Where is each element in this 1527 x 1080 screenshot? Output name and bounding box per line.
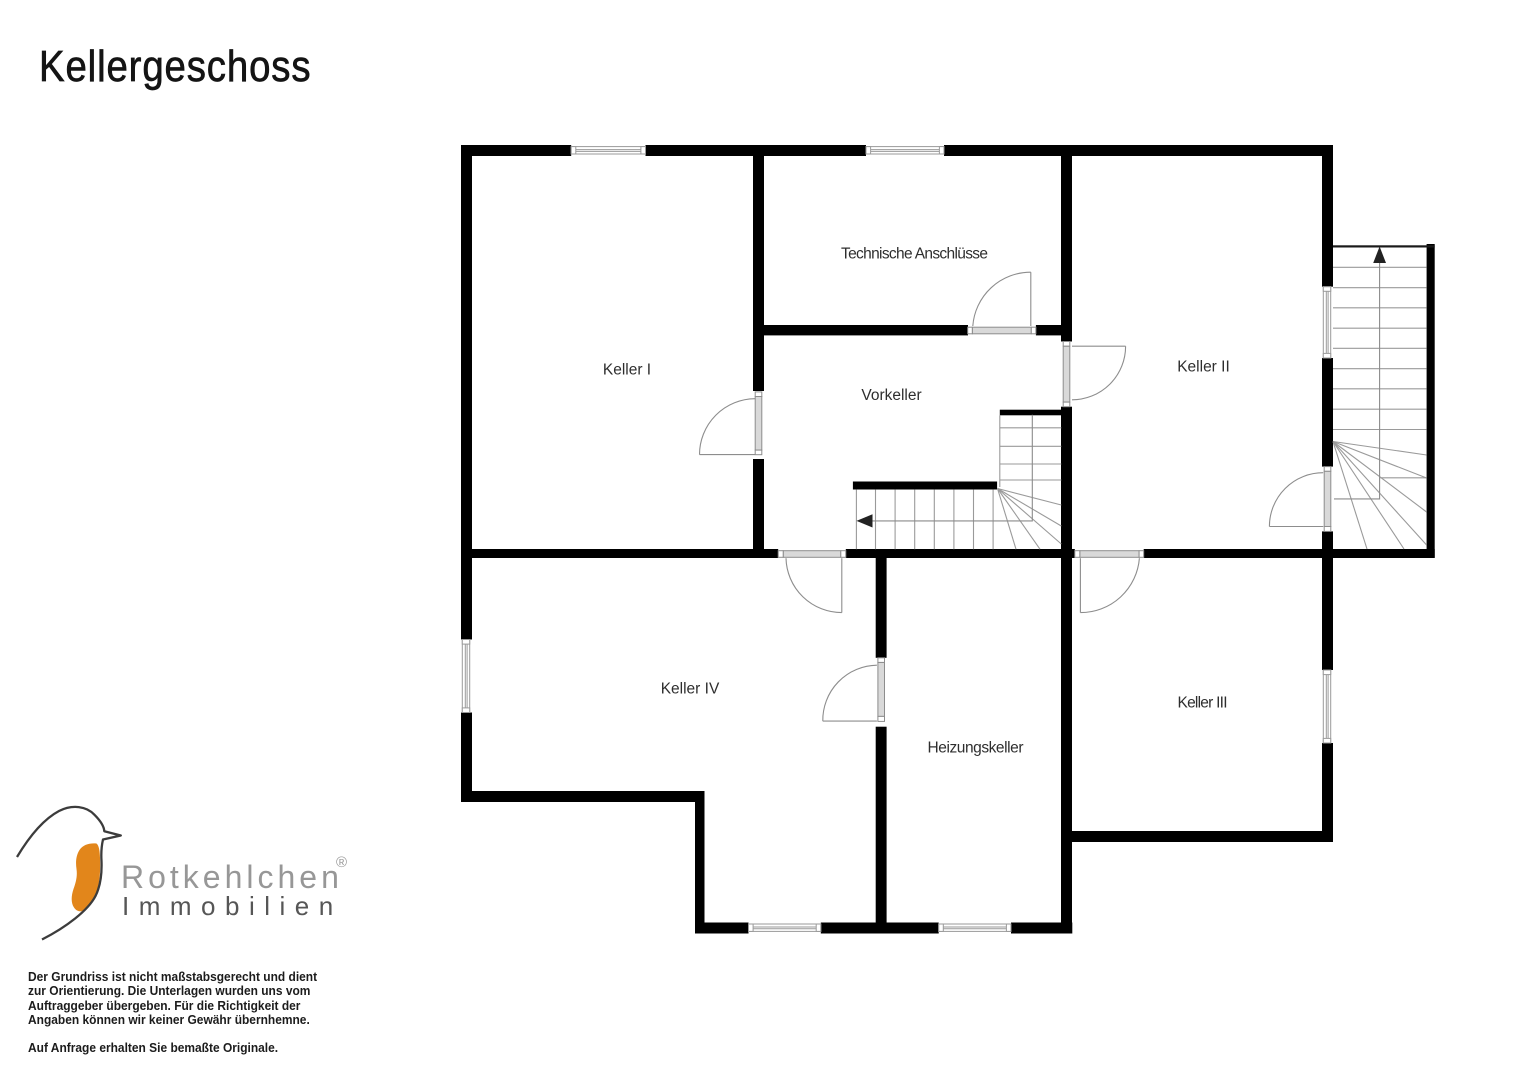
svg-text:Keller I: Keller I — [603, 362, 651, 379]
svg-text:Keller III: Keller III — [1178, 695, 1228, 712]
svg-text:Technische Anschlüsse: Technische Anschlüsse — [841, 246, 988, 263]
svg-text:Vorkeller: Vorkeller — [861, 387, 921, 404]
svg-text:Keller IV: Keller IV — [661, 681, 720, 698]
svg-text:Heizungskeller: Heizungskeller — [928, 740, 1024, 757]
svg-text:Keller II: Keller II — [1177, 359, 1230, 376]
